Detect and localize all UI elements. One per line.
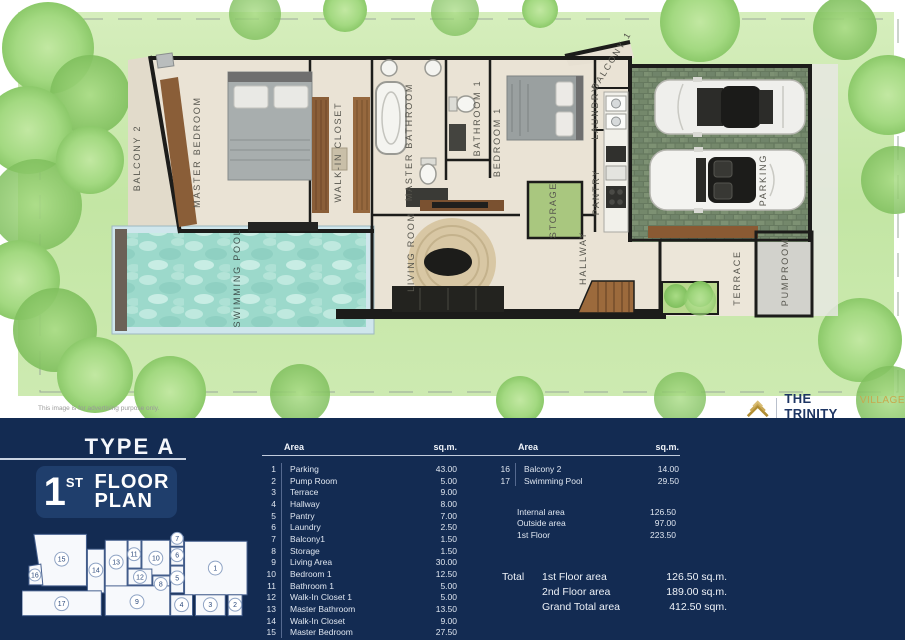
total-row: 1st Floor area126.50 sq.m. bbox=[502, 570, 727, 585]
table-row: 15Master Bedroom27.50 bbox=[258, 627, 472, 639]
minimap-num-12: 12 bbox=[136, 574, 144, 581]
table-row: 11Bathroom 15.00 bbox=[258, 580, 472, 592]
minimap-num-5: 5 bbox=[175, 575, 179, 582]
row-sqm: 5.00 bbox=[397, 592, 457, 602]
minimap-num-14: 14 bbox=[92, 568, 100, 575]
total-row: Grand Total area412.50 sqm. bbox=[502, 600, 727, 615]
floor-ordinal: ST bbox=[66, 475, 84, 490]
row-sqm: 9.00 bbox=[397, 487, 457, 497]
minimap-num-1: 1 bbox=[213, 566, 217, 573]
row-number: 3 bbox=[258, 486, 282, 498]
row-number: 12 bbox=[258, 592, 282, 604]
row-sqm: 5.00 bbox=[397, 476, 457, 486]
row-number: 5 bbox=[258, 510, 282, 522]
table-row: 6Laundry2.50 bbox=[258, 521, 472, 533]
terrace-planter bbox=[662, 281, 718, 316]
table-row: 7Balcony11.50 bbox=[258, 533, 472, 545]
row-name: Balcony 2 bbox=[516, 464, 625, 474]
minimap-num-6: 6 bbox=[175, 553, 179, 560]
row-sqm: 8.00 bbox=[397, 499, 457, 509]
row-sqm: 13.50 bbox=[397, 604, 457, 614]
label-bathroom-1: BATHROOM 1 bbox=[472, 80, 482, 157]
total-label: Total bbox=[502, 570, 524, 585]
table-row: 9Living Area30.00 bbox=[258, 557, 472, 569]
table-row: 1Parking43.00 bbox=[258, 463, 472, 475]
summary-value: 126.50 bbox=[650, 507, 676, 517]
row-sqm: 7.00 bbox=[397, 511, 457, 521]
minimap-num-15: 15 bbox=[58, 557, 66, 564]
table-row: 13Master Bathroom13.50 bbox=[258, 603, 472, 615]
row-number: 6 bbox=[258, 521, 282, 533]
label-pumproom: PUMPROOM bbox=[780, 238, 790, 306]
row-number: 14 bbox=[258, 615, 282, 627]
row-number: 10 bbox=[258, 568, 282, 580]
laundry-pantry-fixtures bbox=[604, 92, 628, 232]
type-underline bbox=[0, 458, 186, 460]
row-name: Parking bbox=[282, 464, 397, 474]
table-row: 14Walk-In Closet9.00 bbox=[258, 615, 472, 627]
table2-col-area: Area bbox=[518, 442, 538, 452]
total-row: 2nd Floor area189.00 sq.m. bbox=[502, 585, 727, 600]
info-panel: TYPE A 1ST FLOOR PLAN bbox=[0, 418, 905, 640]
row-sqm: 9.00 bbox=[397, 616, 457, 626]
row-sqm: 14.00 bbox=[625, 464, 679, 474]
row-sqm: 1.50 bbox=[397, 534, 457, 544]
row-number: 16 bbox=[492, 463, 516, 475]
brand-divider bbox=[776, 398, 777, 420]
total-row-label: 2nd Floor area bbox=[542, 585, 666, 600]
label-balcony-2: BALCONY 2 bbox=[132, 125, 142, 192]
row-number: 1 bbox=[258, 463, 282, 475]
area-table-1: 1Parking43.00 2Pump Room5.00 3Terrace9.0… bbox=[258, 463, 472, 638]
row-name: Hallway bbox=[282, 499, 397, 509]
floor-plan-badge: 1ST FLOOR PLAN bbox=[36, 466, 177, 518]
car-2 bbox=[650, 147, 805, 213]
row-number: 15 bbox=[258, 627, 282, 639]
label-master-bathroom: MASTER BATHROOM bbox=[404, 83, 414, 201]
table-header-rule bbox=[262, 455, 680, 456]
label-hallway: HALLWAY bbox=[578, 231, 588, 285]
row-name: Swimming Pool bbox=[516, 476, 625, 486]
car-1 bbox=[655, 77, 805, 137]
table1-col-area: Area bbox=[284, 442, 304, 452]
summary-row: Internal area126.50 bbox=[492, 506, 679, 518]
row-name: Balcony1 bbox=[282, 534, 397, 544]
summary-row: Outside area97.00 bbox=[492, 518, 679, 530]
label-parking: PARKING bbox=[758, 154, 768, 206]
row-name: Walk-In Closet bbox=[282, 616, 397, 626]
row-sqm: 43.00 bbox=[397, 464, 457, 474]
label-bedroom-1: BEDROOM 1 bbox=[492, 107, 502, 177]
screenshot: BALCONY 2 MASTER BEDROOM WALK-IN CLOSET … bbox=[0, 0, 905, 640]
table-row: 2Pump Room5.00 bbox=[258, 475, 472, 487]
minimap-num-4: 4 bbox=[180, 602, 184, 609]
summary-label: 1st Floor bbox=[492, 530, 650, 540]
label-laundry: LAUNDRY bbox=[590, 84, 600, 139]
summary-label: Internal area bbox=[492, 507, 650, 517]
row-name: Pump Room bbox=[282, 476, 397, 486]
row-number: 17 bbox=[492, 475, 516, 487]
row-number: 11 bbox=[258, 580, 282, 592]
table-row: 17Swimming Pool29.50 bbox=[492, 475, 682, 487]
row-sqm: 30.00 bbox=[397, 557, 457, 567]
row-name: Living Area bbox=[282, 557, 397, 567]
table-row: 16Balcony 214.00 bbox=[492, 463, 682, 475]
row-name: Bathroom 1 bbox=[282, 581, 397, 591]
minimap: 1 2 3 4 5 6 7 8 9 10 11 12 13 14 15 16 1… bbox=[22, 528, 250, 620]
label-terrace: TERRACE bbox=[732, 250, 742, 306]
summary-block: Internal area126.50 Outside area97.00 1s… bbox=[492, 506, 679, 541]
row-sqm: 12.50 bbox=[397, 569, 457, 579]
row-name: Bedroom 1 bbox=[282, 569, 397, 579]
table2-col-unit: sq.m. bbox=[655, 442, 679, 452]
brand-suffix: VILLAGE bbox=[860, 395, 905, 406]
parking-deck bbox=[648, 226, 758, 238]
minimap-num-17: 17 bbox=[58, 601, 66, 608]
row-number: 8 bbox=[258, 545, 282, 557]
table-row: 12Walk-In Closet 15.00 bbox=[258, 592, 472, 604]
bedroom-1-bed bbox=[507, 76, 583, 140]
minimap-num-9: 9 bbox=[135, 599, 139, 606]
total-row-value: 189.00 sq.m. bbox=[666, 585, 727, 600]
floor-word-2: PLAN bbox=[94, 492, 169, 511]
table-row: 5Pantry7.00 bbox=[258, 510, 472, 522]
table-row: 4Hallway8.00 bbox=[258, 498, 472, 510]
swimming-pool bbox=[112, 226, 374, 334]
total-row-label: 1st Floor area bbox=[542, 570, 666, 585]
row-name: Storage bbox=[282, 546, 397, 556]
summary-value: 223.50 bbox=[650, 530, 676, 540]
label-pantry: PANTRY bbox=[591, 169, 601, 215]
row-name: Walk-In Closet 1 bbox=[282, 592, 397, 602]
summary-label: Outside area bbox=[492, 518, 655, 528]
row-sqm: 27.50 bbox=[397, 627, 457, 637]
minimap-num-13: 13 bbox=[112, 560, 120, 567]
label-storage: STORAGE bbox=[548, 182, 558, 238]
table-row: 10Bedroom 112.50 bbox=[258, 568, 472, 580]
table-row: 8Storage1.50 bbox=[258, 545, 472, 557]
row-sqm: 2.50 bbox=[397, 522, 457, 532]
summary-row: 1st Floor223.50 bbox=[492, 529, 679, 541]
row-number: 13 bbox=[258, 603, 282, 615]
row-number: 4 bbox=[258, 498, 282, 510]
row-sqm: 1.50 bbox=[397, 546, 457, 556]
label-walk-in-closet: WALK-IN CLOSET bbox=[333, 102, 343, 203]
minimap-num-8: 8 bbox=[159, 581, 163, 588]
minimap-num-16: 16 bbox=[31, 572, 39, 579]
floor-plan-illustration: BALCONY 2 MASTER BEDROOM WALK-IN CLOSET … bbox=[0, 0, 905, 418]
summary-value: 97.00 bbox=[655, 518, 676, 528]
row-sqm: 5.00 bbox=[397, 581, 457, 591]
row-number: 7 bbox=[258, 533, 282, 545]
row-number: 2 bbox=[258, 475, 282, 487]
minimap-num-7: 7 bbox=[175, 536, 179, 543]
label-master-bedroom: MASTER BEDROOM bbox=[192, 96, 202, 208]
row-name: Pantry bbox=[282, 511, 397, 521]
label-living-room: LIVING ROOM bbox=[406, 212, 416, 292]
area-table-2: 16Balcony 214.00 17Swimming Pool29.50 bbox=[492, 463, 682, 486]
total-row-value: 412.50 sqm. bbox=[669, 600, 727, 615]
floor-number: 1ST bbox=[44, 472, 84, 512]
row-name: Master Bathroom bbox=[282, 604, 397, 614]
label-swimming-pool: SWIMMING POOL bbox=[232, 229, 242, 328]
disclaimer-text: This image is for advertising purpose on… bbox=[38, 405, 159, 412]
row-name: Terrace bbox=[282, 487, 397, 497]
brand-name: THE TRINITY bbox=[784, 391, 855, 421]
totals-block: Total 1st Floor area126.50 sq.m. 2nd Flo… bbox=[502, 570, 727, 615]
minimap-num-11: 11 bbox=[130, 552, 137, 559]
table-row: 3Terrace9.00 bbox=[258, 486, 472, 498]
minimap-num-10: 10 bbox=[152, 556, 160, 563]
row-name: Laundry bbox=[282, 522, 397, 532]
table1-header: Area sq.m. bbox=[258, 442, 457, 452]
row-sqm: 29.50 bbox=[625, 476, 679, 486]
row-name: Master Bedroom bbox=[282, 627, 397, 637]
minimap-num-3: 3 bbox=[208, 602, 212, 609]
table1-col-unit: sq.m. bbox=[433, 442, 457, 452]
floor-words: FLOOR PLAN bbox=[94, 473, 169, 511]
type-title: TYPE A bbox=[55, 434, 205, 460]
table2-header: Area sq.m. bbox=[492, 442, 679, 452]
total-row-label: Grand Total area bbox=[542, 600, 669, 615]
minimap-num-2: 2 bbox=[233, 602, 237, 609]
total-row-value: 126.50 sq.m. bbox=[666, 570, 727, 585]
row-number: 9 bbox=[258, 557, 282, 569]
